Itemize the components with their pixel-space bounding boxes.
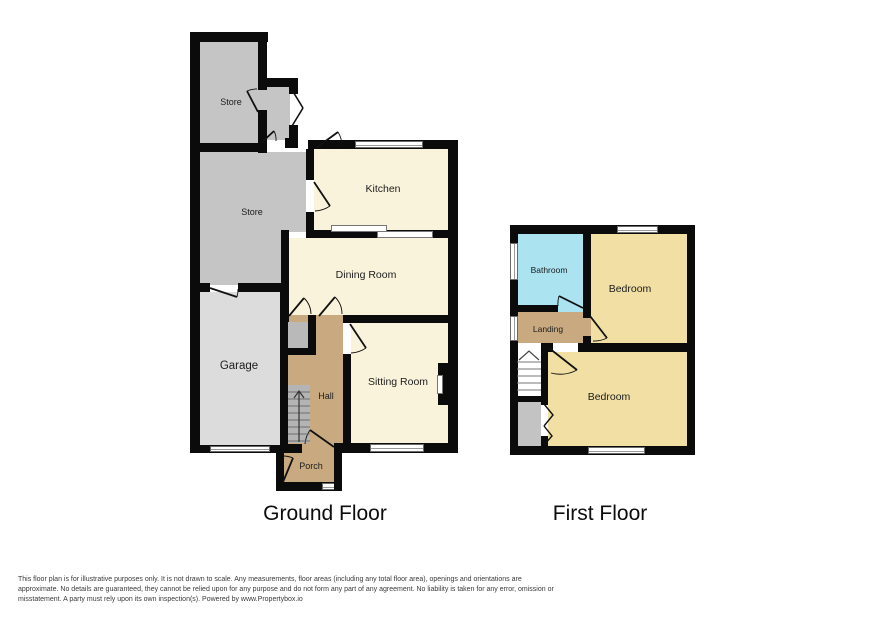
label-garage: Garage xyxy=(220,360,258,372)
wall-ff-top xyxy=(510,225,695,234)
label-store-1: Store xyxy=(220,97,242,107)
ground-stairs xyxy=(288,385,310,443)
label-bedroom-2: Bedroom xyxy=(588,391,631,403)
room-store-2-lower xyxy=(200,230,281,285)
label-store-2: Store xyxy=(241,207,263,217)
wall-garage-right xyxy=(280,292,288,453)
window-bedroom-2 xyxy=(588,447,645,454)
wall-store1-right-b xyxy=(258,110,267,153)
garage-door xyxy=(210,446,270,452)
wall-garage-top-b xyxy=(238,283,289,292)
room-store-1 xyxy=(200,42,258,143)
label-bedroom-1: Bedroom xyxy=(609,283,652,295)
window-kitchen xyxy=(355,141,423,148)
room-store-2 xyxy=(200,152,306,232)
label-bathroom: Bathroom xyxy=(531,265,568,275)
disclaimer-line-1: This floor plan is for illustrative purp… xyxy=(18,575,554,585)
window-landing xyxy=(510,316,518,341)
wall-left-outer xyxy=(190,32,200,453)
label-landing: Landing xyxy=(533,324,563,334)
wall-bed1-door-stub-top xyxy=(583,312,591,318)
wall-bathroom-bottom xyxy=(510,305,558,312)
disclaimer-text: This floor plan is for illustrative purp… xyxy=(18,575,554,604)
wall-dining-sitting-divider xyxy=(343,315,458,323)
window-bedroom-1 xyxy=(617,226,658,233)
wall-kitchen-left-a xyxy=(306,149,314,180)
wall-vestibule-right-a xyxy=(289,84,298,94)
floor-plan-page: Store Store Garage Kitchen Dining Room S… xyxy=(0,0,886,620)
wall-stairs-bed2-b xyxy=(541,436,548,448)
wall-stairs-understairs xyxy=(517,396,541,402)
wall-landing-bed2-b xyxy=(578,343,695,352)
first-floor-title: First Floor xyxy=(553,502,648,526)
first-stairs xyxy=(517,348,541,396)
wall-sitting-left xyxy=(343,354,351,443)
label-hall: Hall xyxy=(318,391,334,401)
door-entry-double xyxy=(292,90,303,126)
wall-top-stores xyxy=(190,32,268,42)
label-sitting: Sitting Room xyxy=(368,376,428,388)
wall-stairs-bed2-a xyxy=(541,348,548,405)
wall-ff-right xyxy=(687,225,695,455)
wall-right-outer xyxy=(448,140,458,453)
hall-cupboard xyxy=(288,322,308,348)
wall-garage-top-a xyxy=(190,283,210,292)
wall-porch-right xyxy=(334,450,342,490)
understairs-cupboard xyxy=(517,402,541,446)
opening-kitchen-dining-2 xyxy=(377,231,433,238)
disclaimer-line-2: approximate. No details are guaranteed, … xyxy=(18,585,554,595)
wall-bath-bed1-divider xyxy=(583,233,591,312)
label-porch: Porch xyxy=(299,461,323,471)
window-bathroom xyxy=(510,243,518,280)
label-kitchen: Kitchen xyxy=(365,183,400,195)
wall-hall-bottom-left xyxy=(288,444,302,453)
wall-vestibule-bottom xyxy=(285,138,298,148)
label-dining: Dining Room xyxy=(336,269,397,281)
wall-store-divider xyxy=(190,143,258,152)
ground-floor-title: Ground Floor xyxy=(263,502,387,526)
wall-bed1-door-stub-bottom xyxy=(583,336,591,343)
window-sitting xyxy=(370,444,424,452)
disclaimer-line-3: misstatement. A party must rely upon its… xyxy=(18,595,554,605)
chimney-recess xyxy=(437,375,443,394)
